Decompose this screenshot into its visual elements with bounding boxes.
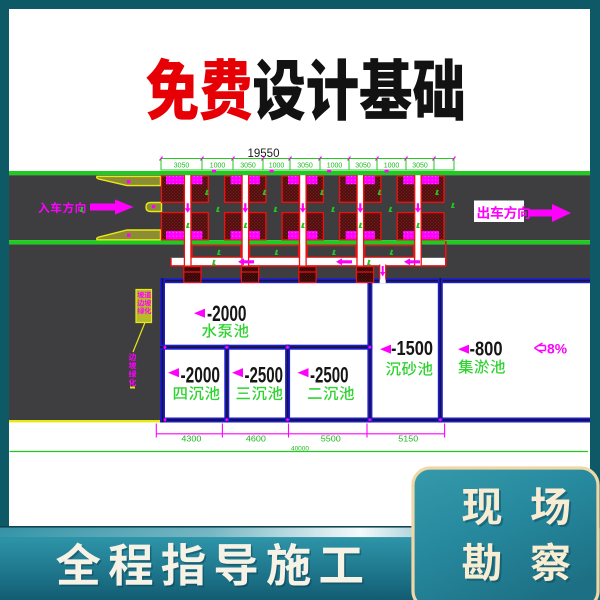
svg-text:-2500: -2500 — [310, 363, 349, 388]
svg-text:-1500: -1500 — [391, 338, 433, 360]
svg-text:40000: 40000 — [291, 446, 309, 453]
svg-text:4600: 4600 — [246, 435, 267, 444]
svg-text:1000: 1000 — [384, 163, 400, 170]
svg-text:-800: -800 — [470, 339, 503, 361]
svg-text:3050: 3050 — [174, 163, 190, 170]
svg-text:4300: 4300 — [181, 435, 202, 444]
svg-text:-2000: -2000 — [207, 301, 247, 326]
svg-text:1000: 1000 — [269, 163, 285, 170]
svg-text:-2000: -2000 — [181, 363, 221, 388]
svg-text:5150: 5150 — [398, 435, 419, 444]
svg-text:3050: 3050 — [355, 163, 371, 170]
svg-text:3050: 3050 — [412, 163, 428, 170]
svg-text:-2500: -2500 — [245, 363, 284, 388]
svg-text:3050: 3050 — [297, 163, 313, 170]
svg-text:5500: 5500 — [321, 435, 342, 444]
svg-text:8%: 8% — [547, 341, 568, 357]
svg-text:1000: 1000 — [210, 163, 226, 170]
svg-text:3050: 3050 — [240, 163, 256, 170]
svg-text:1000: 1000 — [327, 163, 343, 170]
